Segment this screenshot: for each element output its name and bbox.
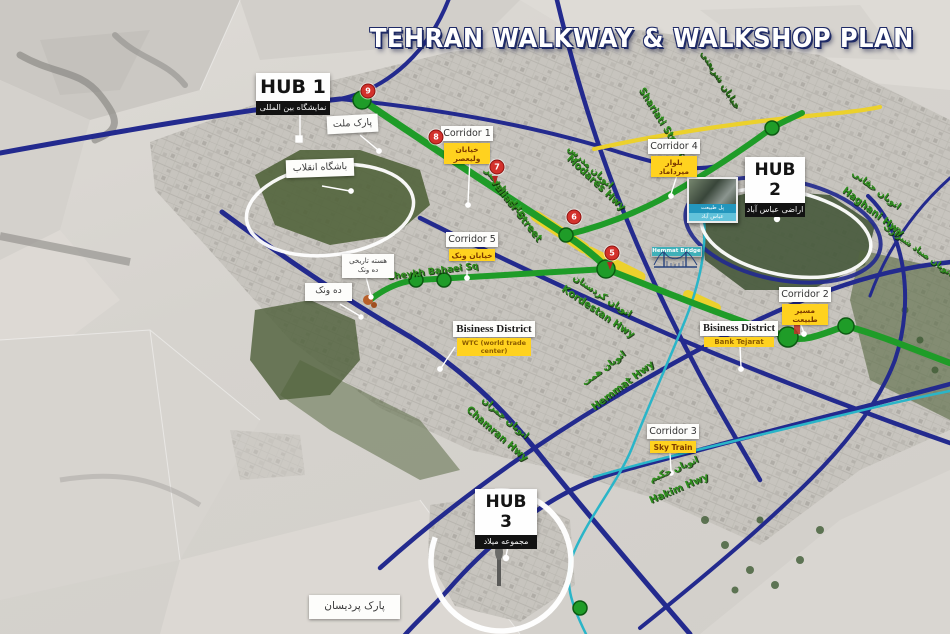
corridor-5-sublabel: خیابان ونک <box>449 249 495 261</box>
map-pin-5 <box>607 262 613 270</box>
marker-9: 9 <box>361 84 376 99</box>
pardisan-park-label: پارک پردیسان <box>309 595 400 619</box>
mellat-park-label: پارک ملت <box>327 114 379 135</box>
corridor-5-callout: Corridor 5 خیابان ونک <box>446 232 498 261</box>
corridor-4-sublabel: بلوار میرداماد <box>651 156 697 177</box>
corridor-4-label: Corridor 4 <box>648 139 700 154</box>
hub-1-sublabel: نمایشگاه بین المللی <box>256 101 330 115</box>
hub-2-callout: HUB 2 اراضی عباس آباد <box>745 157 805 217</box>
business-district-wtc-callout: Bisiness District WTC (world trade cente… <box>453 321 535 356</box>
tabiat-bridge-photo-card: پل طبیعت عباس آباد <box>687 177 738 223</box>
corridor-1-callout: Corridor 1 خیابان ولیعصر <box>441 126 493 164</box>
marker-8: 8 <box>429 130 444 145</box>
hub-3-label: HUB 3 <box>475 489 537 535</box>
deh-vanak-core-line2: ده ونک <box>358 266 379 274</box>
corridor-2-sublabel: مسیر طبیعت <box>782 304 828 325</box>
map-pin-7 <box>492 176 498 184</box>
business-district-wtc-label: Bisiness District <box>453 321 535 337</box>
business-district-bank-label: Bisiness District <box>700 321 778 336</box>
map-title: TEHRAN WALKWAY & WALKSHOP PLAN <box>370 24 914 54</box>
hub-1-label: HUB 1 <box>256 73 330 101</box>
photo-card-caption-2: عباس آباد <box>689 213 736 221</box>
hub-3-sublabel: مجموعه میلاد <box>475 535 537 549</box>
bridge-sketch-card: Hemmat Bridge <box>651 246 702 257</box>
marker-5: 5 <box>605 246 620 261</box>
hub-3-callout: HUB 3 مجموعه میلاد <box>475 489 537 549</box>
map-canvas: TEHRAN WALKWAY & WALKSHOP PLAN HUB 1 نما… <box>0 0 950 634</box>
corridor-1-sublabel: خیابان ولیعصر <box>444 143 490 164</box>
corridor-2-label: Corridor 2 <box>779 287 831 302</box>
deh-vanak-core-line1: هسته تاریخی <box>349 257 387 265</box>
suspension-bridge-sketch <box>652 247 699 273</box>
marker-7: 7 <box>490 160 505 175</box>
corridor-5-label: Corridor 5 <box>446 232 498 247</box>
business-district-bank-callout: Bisiness District Bank Tejarat <box>700 321 778 347</box>
business-district-wtc-sublabel: WTC (world trade center) <box>457 338 531 356</box>
corridor-1-label: Corridor 1 <box>441 126 493 141</box>
corridor-4-callout: Corridor 4 بلوار میرداماد <box>648 139 700 177</box>
hub-2-label: HUB 2 <box>745 157 805 203</box>
business-district-bank-sublabel: Bank Tejarat <box>704 337 774 347</box>
hub-1-callout: HUB 1 نمایشگاه بین المللی <box>256 73 330 115</box>
deh-vanak-historic-core-label: هسته تاریخی ده ونک <box>342 254 394 278</box>
deh-vanak-label: ده ونک <box>305 283 352 301</box>
enghelab-club-label: باشگاه انقلاب <box>286 158 355 179</box>
marker-6: 6 <box>567 210 582 225</box>
corridor-2-callout: Corridor 2 مسیر طبیعت <box>779 287 831 325</box>
corridor-3-callout: Corridor 3 Sky Train <box>647 424 699 453</box>
photo-card-caption-1: پل طبیعت <box>689 204 736 213</box>
bridge-photo <box>689 179 736 204</box>
corridor-3-sublabel: Sky Train <box>650 441 696 453</box>
corridor-3-label: Corridor 3 <box>647 424 699 439</box>
hub-2-sublabel: اراضی عباس آباد <box>745 203 805 217</box>
